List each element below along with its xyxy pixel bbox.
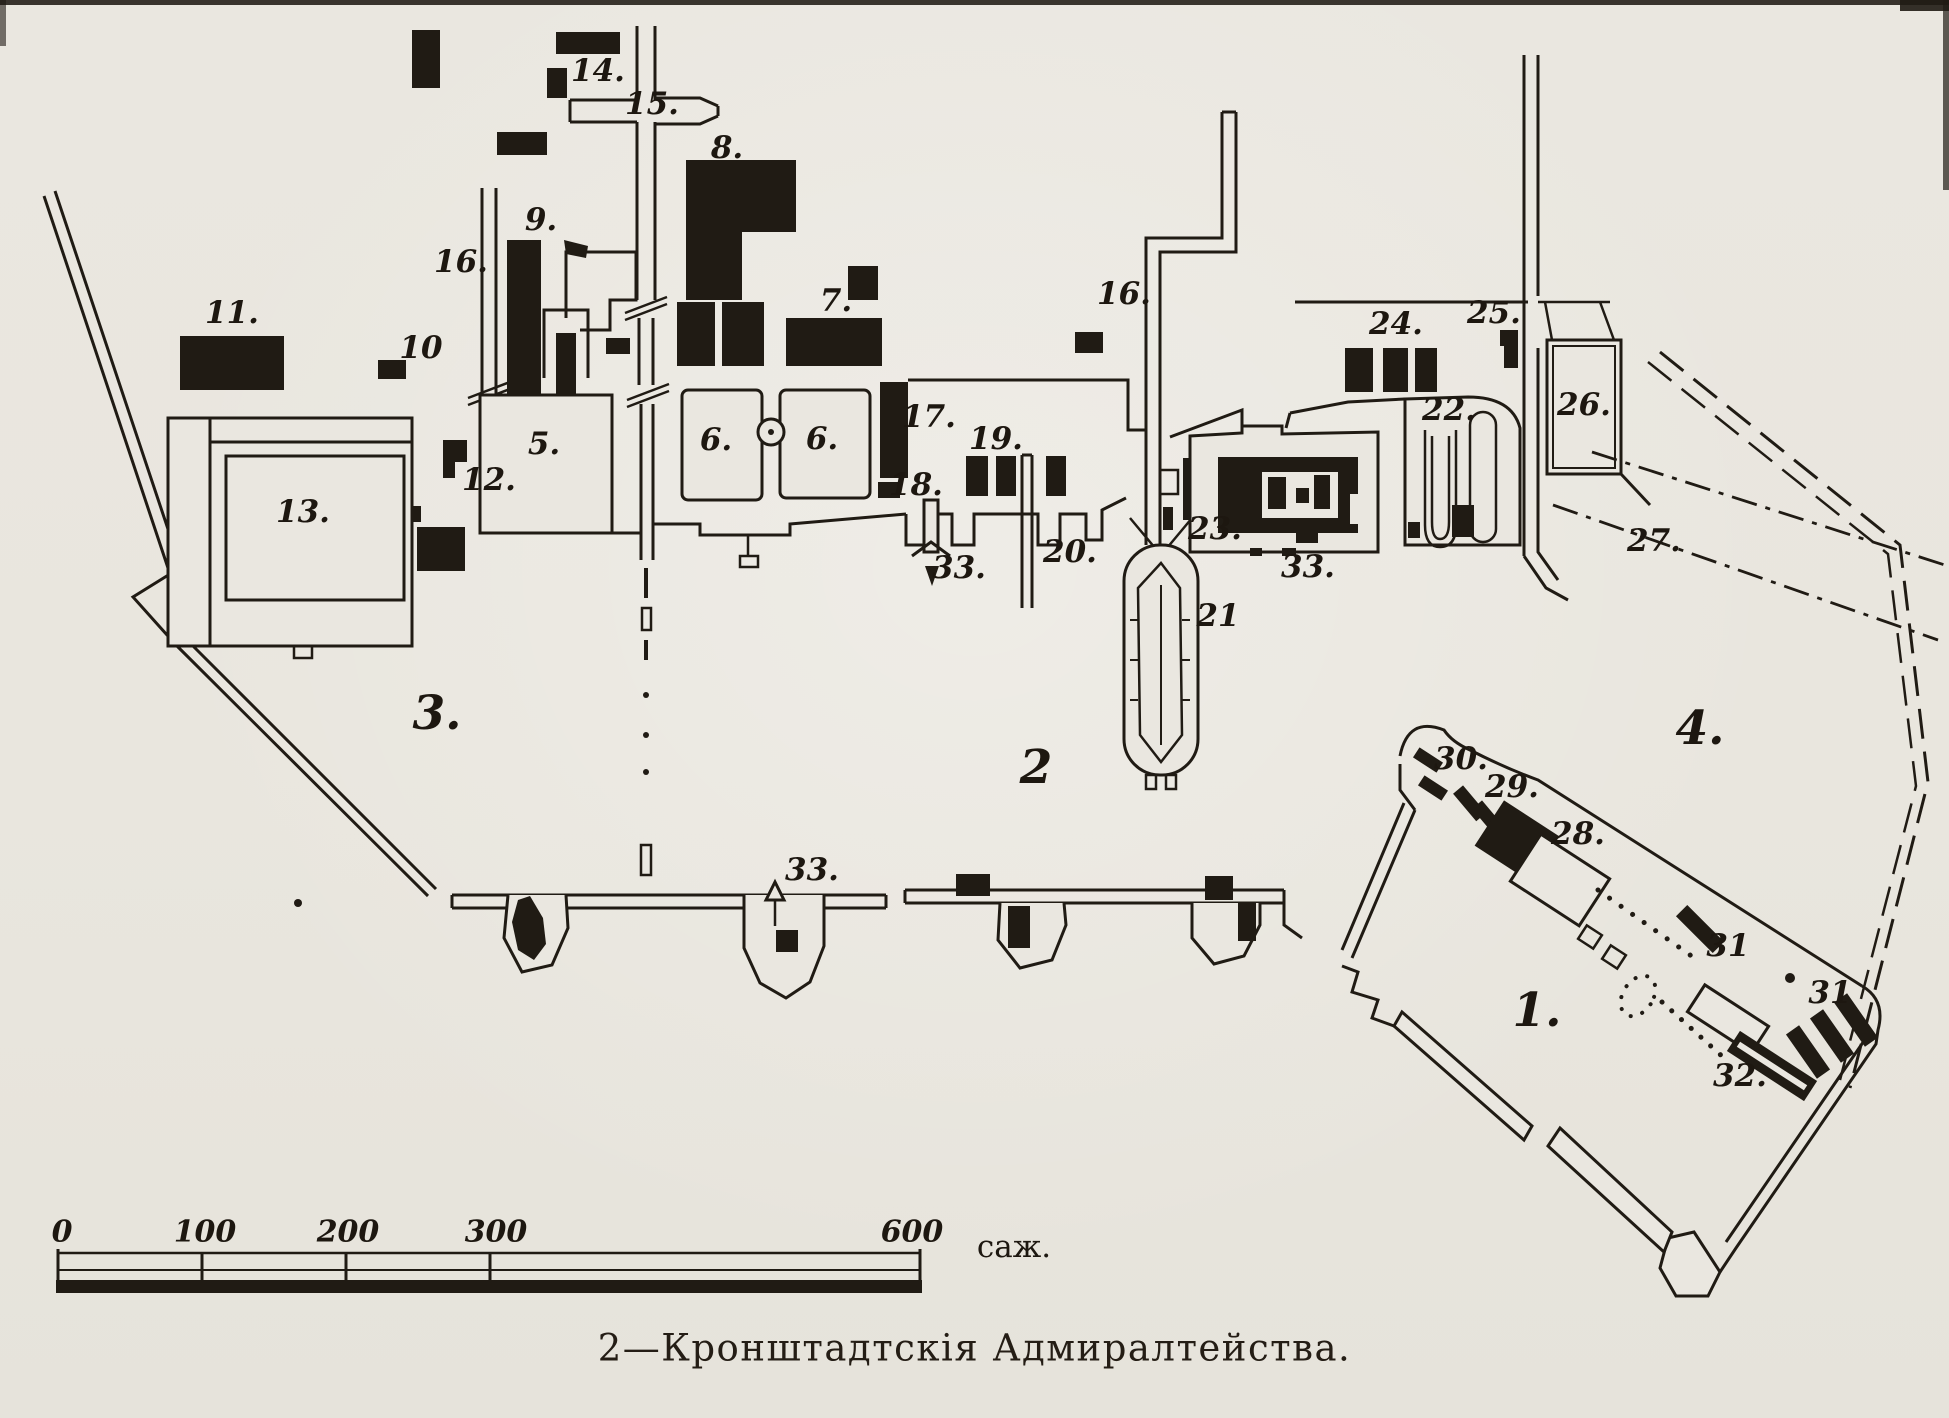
map-number-label: 33. [932,553,986,584]
map-number-label: 21 [1196,601,1239,632]
map-number-label: 24. [1369,309,1423,340]
map-drawing [0,0,1949,1418]
scanned-plan-page: 14.15.8.9.16.1011.13.12.5.6.6.7.17.18.19… [0,0,1949,1418]
map-number-label: 19. [969,424,1023,455]
map-number-label: 23. [1188,514,1242,545]
map-number-label: 6. [806,424,838,455]
map-number-label: 16. [1097,279,1151,310]
map-number-label: 5. [528,429,560,460]
map-number-label: 26. [1557,390,1611,421]
map-number-label: 14. [571,56,625,87]
map-number-label: 33. [1281,552,1335,583]
map-number-label: 7. [820,286,852,317]
region-label: 1. [1512,987,1561,1034]
map-number-label: 27. [1627,526,1681,557]
map-number-label: 16. [434,247,488,278]
scale-tick-label: 600 [881,1218,944,1248]
scan-border [0,0,1949,190]
scale-tick-label: 100 [174,1218,237,1248]
map-number-label: 18. [889,470,943,501]
region-label: 4. [1675,705,1724,752]
figure-caption: 2—Кронштадтскія Адмиралтейства. [598,1327,1352,1370]
map-number-label: 20. [1043,537,1097,568]
map-number-label: 9. [525,205,557,236]
region-label: 3. [412,690,461,737]
scale-tick-label: 300 [465,1218,528,1248]
scale-unit-label: саж. [977,1232,1051,1263]
map-number-label: 22. [1422,395,1476,426]
scale-tick-label: 200 [317,1218,380,1248]
map-number-label: 11. [205,298,259,329]
map-number-label: 28. [1551,819,1605,850]
scale-bar-graphic [56,1249,922,1293]
map-number-label: 10 [399,333,442,364]
region-label: 2 [1020,744,1053,791]
map-number-label: 6. [700,425,732,456]
map-number-label: 30. [1434,744,1488,775]
map-number-label: 33. [785,855,839,886]
map-number-label: 31 [1808,978,1851,1009]
map-number-label: 32. [1713,1061,1767,1092]
map-number-label: 31 [1706,931,1749,962]
scale-tick-label: 0 [52,1218,73,1248]
map-number-label: 17. [902,402,956,433]
map-number-label: 12. [462,465,516,496]
map-number-label: 8. [711,133,743,164]
map-number-label: 13. [276,497,330,528]
map-number-label: 15. [625,89,679,120]
map-number-label: 29. [1485,772,1539,803]
map-number-label: 25. [1467,298,1521,329]
